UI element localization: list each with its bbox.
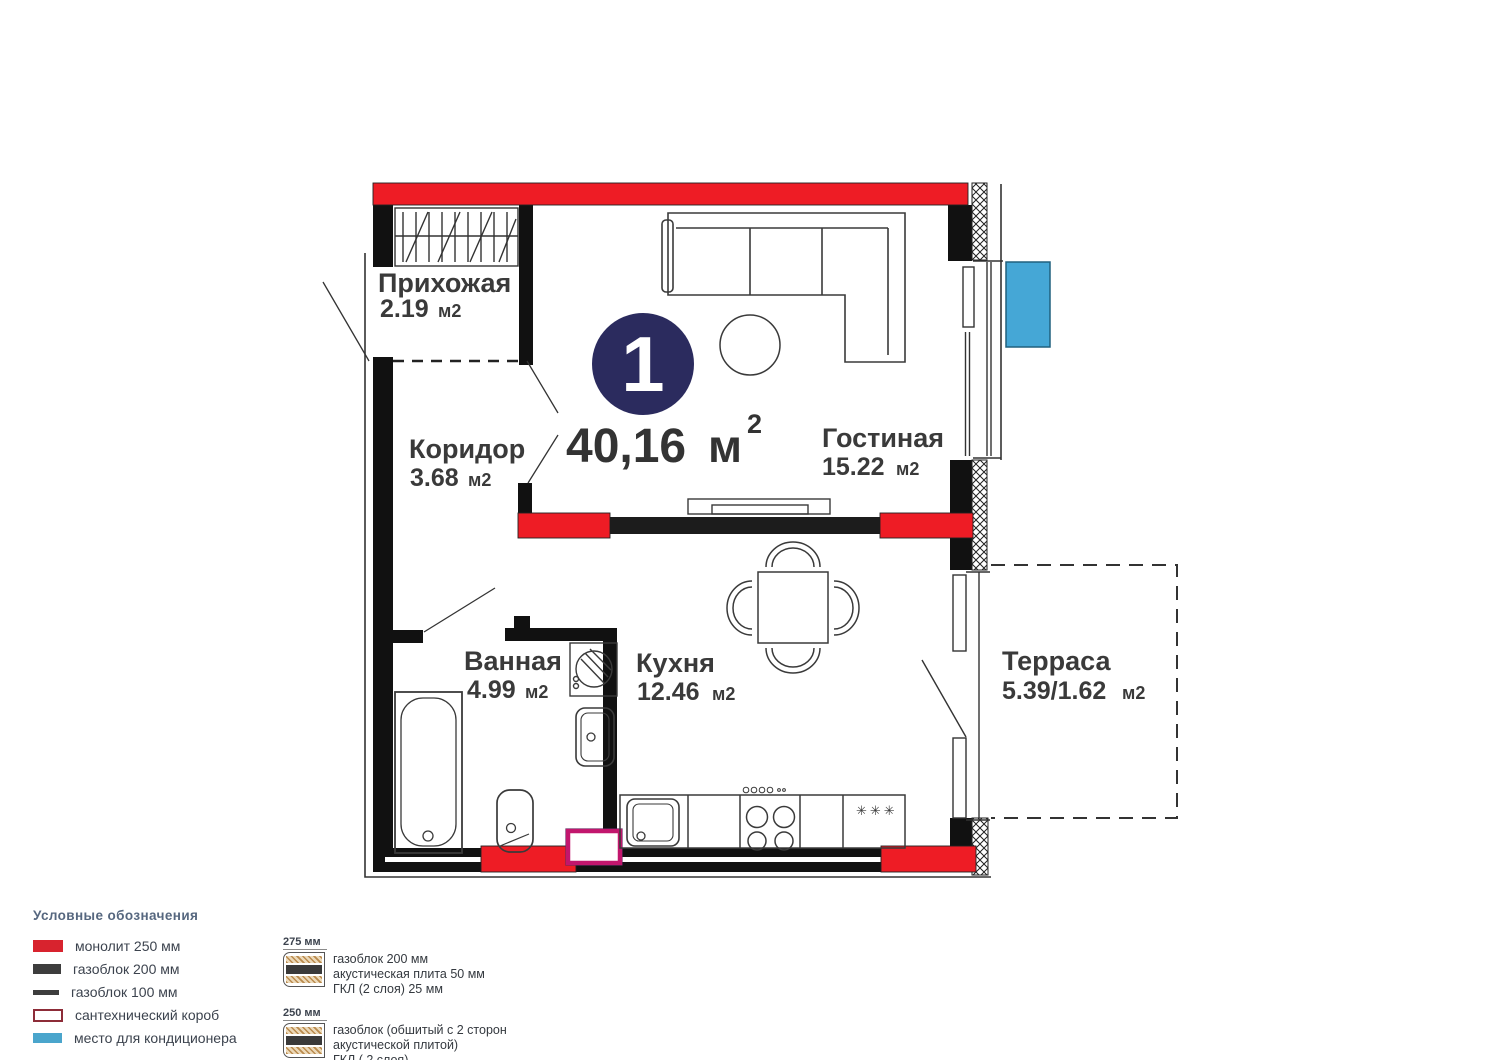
sofa <box>662 213 905 362</box>
room-label-living: Гостиная 15.22 м2 <box>822 423 944 481</box>
wardrobe <box>395 208 518 266</box>
dining-table <box>758 572 828 643</box>
chair-left <box>727 581 752 635</box>
stove <box>743 787 794 850</box>
chair-bottom <box>766 648 820 673</box>
svg-text:м2: м2 <box>1122 683 1145 703</box>
svg-text:м2: м2 <box>468 470 491 490</box>
wall-thin-tv <box>610 517 880 534</box>
bottom-wall-cavity <box>385 857 959 862</box>
svg-text:м2: м2 <box>896 459 919 479</box>
svg-text:15.22: 15.22 <box>822 453 885 481</box>
ac-unit-spot <box>1006 262 1050 347</box>
fridge-stars: ✳✳✳ <box>856 803 898 818</box>
side-table <box>720 315 780 375</box>
kitchen-sink <box>627 799 679 846</box>
plumbing-box <box>566 829 622 865</box>
room-label-kitchen: Кухня 12.46 м2 <box>636 648 735 706</box>
corridor-door-swing-a <box>527 361 558 413</box>
svg-text:40,16: 40,16 <box>566 420 686 473</box>
floorplan-drawing: ✳✳✳ Прихожая 2.19 м2 Коридор 3.68 м2 Гос… <box>0 0 1500 905</box>
gasblock100-swatch <box>33 990 59 995</box>
svg-text:Коридор: Коридор <box>409 434 525 464</box>
corridor-door-swing-b <box>528 435 558 483</box>
legend-wall-types: 275 мм газоблок 200 мм акустическая плит… <box>283 932 507 1060</box>
chair-top <box>766 542 820 567</box>
svg-text:2.19: 2.19 <box>380 295 429 323</box>
svg-text:4.99: 4.99 <box>467 676 516 704</box>
svg-text:Кухня: Кухня <box>636 648 715 678</box>
svg-text:Ванная: Ванная <box>464 646 562 676</box>
terrace-door-swing <box>922 660 966 737</box>
chair-right <box>834 581 859 635</box>
svg-text:5.39/1.62: 5.39/1.62 <box>1002 677 1106 705</box>
legend: Условные обозначения монолит 250 мм газо… <box>33 908 793 1045</box>
room-label-terrace: Терраса 5.39/1.62 м2 <box>1002 646 1145 705</box>
wall-type-275-swatch <box>283 952 325 987</box>
total-area: 40,16 м 2 <box>566 409 762 473</box>
svg-text:2: 2 <box>747 409 762 439</box>
plumbing-box-swatch <box>33 1009 63 1022</box>
entrance-door-swing <box>323 282 369 361</box>
terrace-window-door <box>922 572 990 820</box>
room-label-hall: Прихожая 2.19 м2 <box>378 268 511 323</box>
svg-text:12.46: 12.46 <box>637 678 700 706</box>
floorplan-page: ✳✳✳ Прихожая 2.19 м2 Коридор 3.68 м2 Гос… <box>0 0 1500 1060</box>
toilet <box>497 790 533 852</box>
svg-text:м2: м2 <box>438 301 461 321</box>
badge-number: 1 <box>621 320 664 408</box>
svg-text:Терраса: Терраса <box>1002 646 1112 676</box>
bathroom-door-swing <box>424 588 495 632</box>
wall-type-250: 250 мм газоблок (обшитый с 2 сторон акус… <box>283 1003 507 1060</box>
wall-type-250-swatch <box>283 1023 325 1058</box>
living-window <box>963 261 1003 458</box>
ac-spot-swatch <box>33 1033 62 1043</box>
monolith-swatch <box>33 940 63 952</box>
bathtub <box>395 692 462 853</box>
dining-set <box>727 542 859 673</box>
room-label-bathroom: Ванная 4.99 м2 <box>464 646 562 704</box>
walls-gasblock <box>373 205 976 872</box>
tv-console <box>688 499 830 514</box>
legend-title: Условные обозначения <box>33 908 793 923</box>
gasblock200-swatch <box>33 964 61 974</box>
apartment-badge: 1 <box>592 313 694 415</box>
svg-text:Гостиная: Гостиная <box>822 423 944 453</box>
wall-type-275: 275 мм газоблок 200 мм акустическая плит… <box>283 932 507 997</box>
svg-text:м: м <box>708 420 742 472</box>
svg-text:Прихожая: Прихожая <box>378 268 511 298</box>
room-label-corridor: Коридор 3.68 м2 <box>409 434 525 492</box>
svg-text:3.68: 3.68 <box>410 464 459 492</box>
svg-text:м2: м2 <box>525 682 548 702</box>
svg-text:м2: м2 <box>712 684 735 704</box>
